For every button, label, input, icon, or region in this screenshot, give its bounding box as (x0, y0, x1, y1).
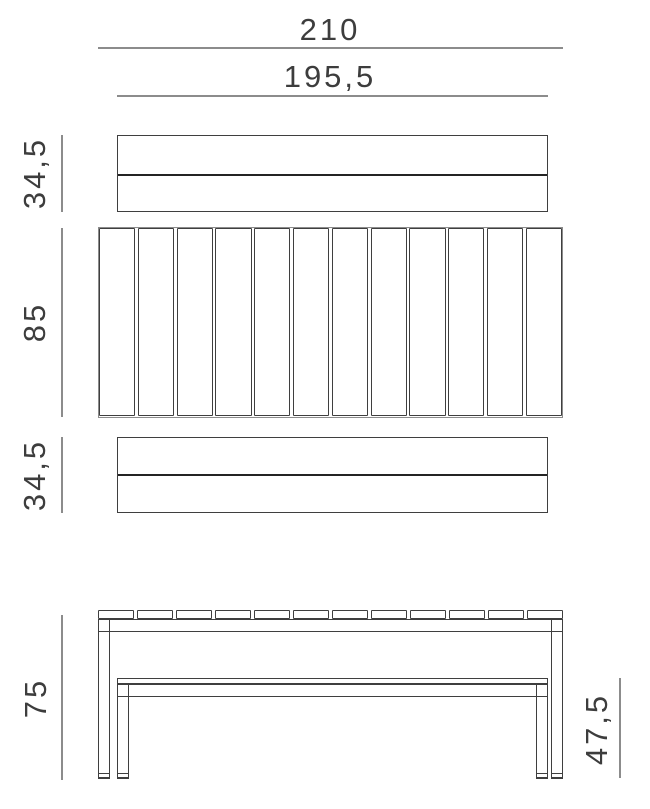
table-slat (409, 228, 445, 416)
dim-label-bench-length: 195,5 (230, 60, 430, 94)
bench-top-view-lower (117, 437, 548, 513)
dim-label-bench-bottom-depth: 34,5 (18, 405, 52, 545)
dim-label-bench-top-depth: 34,5 (18, 103, 52, 243)
bench-top-view-upper (117, 135, 548, 212)
table-slat-edge (527, 610, 563, 619)
table-slat-edge (293, 610, 329, 619)
bench-apron (117, 684, 548, 697)
table-slat-edge (332, 610, 368, 619)
dim-line-bench-top-depth (61, 135, 63, 212)
dim-line-bench-bottom-depth (61, 437, 63, 513)
table-slat (99, 228, 135, 416)
bench-foot-right (536, 773, 548, 778)
table-slat-edge (371, 610, 407, 619)
dim-line-table-height (61, 615, 63, 780)
table-top-view (98, 227, 563, 418)
table-slat (215, 228, 251, 416)
dim-line-bench-height (619, 678, 621, 778)
bench-slat-divider (118, 474, 547, 476)
bench-leg-right (536, 684, 548, 779)
dim-line-table-length (98, 47, 563, 49)
bench-foot-left (117, 773, 129, 778)
dim-label-table-depth: 85 (18, 252, 52, 392)
table-slat (177, 228, 213, 416)
bench-slat-divider (118, 174, 547, 176)
table-slat-edge (137, 610, 173, 619)
table-slat-edge (254, 610, 290, 619)
table-slat-edge (98, 610, 134, 619)
table-slat-edge (488, 610, 524, 619)
dim-line-table-depth (61, 228, 63, 417)
table-foot-right (551, 773, 563, 778)
table-leg-right (551, 619, 563, 779)
table-apron (98, 619, 563, 632)
table-slat (448, 228, 484, 416)
dim-label-table-length: 210 (230, 13, 430, 47)
table-leg-left (98, 619, 110, 779)
elevation-table-slat-band (98, 610, 563, 619)
dim-label-table-height: 75 (19, 628, 53, 768)
dim-label-bench-height: 47,5 (580, 659, 614, 799)
table-foot-left (98, 773, 110, 778)
table-slat-edge (410, 610, 446, 619)
table-slat (254, 228, 290, 416)
table-slat (371, 228, 407, 416)
table-slat-edge (449, 610, 485, 619)
table-slat-edge (176, 610, 212, 619)
dim-line-bench-length (117, 95, 548, 97)
dimension-drawing: 210 195,5 34,5 85 34,5 75 47,5 (0, 0, 650, 809)
table-slat (293, 228, 329, 416)
table-slat (526, 228, 562, 416)
table-slat (332, 228, 368, 416)
table-slat (487, 228, 523, 416)
table-slat-edge (215, 610, 251, 619)
table-slat (138, 228, 174, 416)
bench-leg-left (117, 684, 129, 779)
